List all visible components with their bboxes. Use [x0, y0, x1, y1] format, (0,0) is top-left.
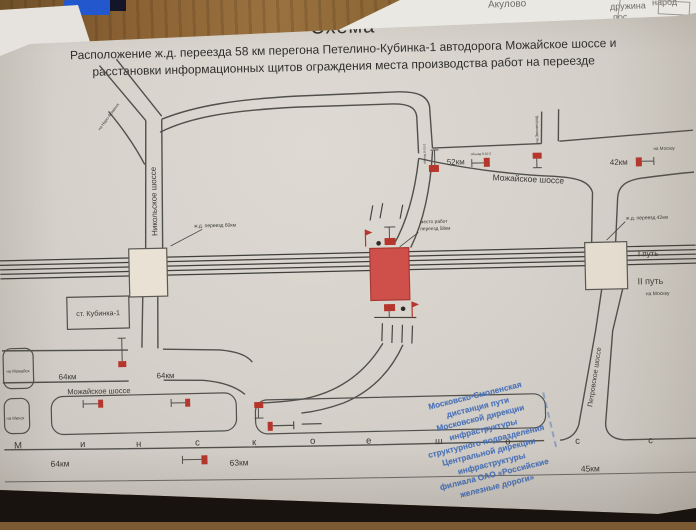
- direction-minsk: на Минск: [6, 415, 24, 420]
- work-zone-crossing-58km-box: [370, 248, 410, 301]
- info-sign-island2-arrow: [268, 421, 322, 431]
- road-label-nikolskoye: Никольское шоссе: [149, 166, 160, 236]
- road-label-petrovskoye: Петровское шоссе: [587, 347, 603, 408]
- minskoye-letter: н: [136, 439, 141, 450]
- station-kubinka1: ст. Кубинка-1: [67, 296, 131, 368]
- schema-content: Схема Расположение ж.д. переезда 58 км п…: [0, 0, 696, 530]
- km-mark-42: 42км: [610, 158, 628, 167]
- km-mark-45: 45км: [581, 463, 600, 473]
- info-sign-island1-a: [83, 400, 103, 408]
- km-mark-64a: 64км: [58, 372, 76, 381]
- direction-mozhaysk: на Можайск: [6, 368, 29, 374]
- schema-sheet: Схема Расположение ж.д. переезда 58 км п…: [0, 0, 696, 522]
- crossing-60km-box: [129, 248, 168, 297]
- work-zone-symbols-bottom: [384, 301, 419, 318]
- background-text-druzhina: дружина: [610, 0, 646, 11]
- road-label-mozhayskoye-bottom: Можайское шоссе: [67, 386, 130, 396]
- station-label: ст. Кубинка-1: [76, 308, 120, 318]
- info-sign-63km: [182, 455, 207, 465]
- km-mark-64c: 64км: [50, 458, 69, 468]
- minskoye-letter: с: [648, 435, 653, 446]
- detour-note: объезд 8-10-2: [471, 152, 492, 156]
- track-1-label: I путь: [638, 249, 659, 258]
- minskoye-letter: с: [575, 436, 580, 447]
- crossing-42km-box: [585, 242, 628, 290]
- dark-object: [110, 0, 126, 11]
- photo-scene: Акулово дружина пос народ Схема Располож…: [0, 0, 696, 522]
- info-sign-42km: [636, 157, 654, 166]
- crossing-42km-label: ж.д. переезд 42км: [626, 215, 669, 222]
- minskoye-letter: о: [310, 436, 316, 447]
- minskoye-letter: и: [80, 439, 86, 450]
- direction-moscow-road: на Москву: [653, 146, 675, 151]
- background-text-akulovo: Акулово: [488, 0, 527, 11]
- road-label-mozhayskoye-top: Можайское шоссе: [492, 172, 564, 185]
- km-mark-64b: 64км: [156, 371, 174, 380]
- km-mark-63: 63км: [229, 457, 248, 467]
- work-zone-symbols-top: [365, 227, 395, 247]
- minskoye-letter: с: [195, 437, 200, 448]
- work-zone-label-1: место работ: [420, 219, 448, 226]
- km-mark-52: 52км: [447, 157, 465, 166]
- minskoye-letter: М: [14, 440, 22, 451]
- detour-note-vertical: объезд 8-10-2: [422, 143, 426, 164]
- info-sign-island1-b: [171, 399, 190, 407]
- crossing-60km-label: ж.д. переезд 60км: [194, 223, 237, 230]
- minskoye-letter: е: [366, 436, 372, 447]
- info-sign-zvenigorod: [533, 153, 542, 168]
- work-zone-label-2: переезд 58км: [420, 226, 450, 233]
- direction-zvenigorod: на Звенигород: [534, 115, 540, 143]
- ramp-road: [109, 111, 145, 166]
- schema-drawing: ст. Кубинка-1: [0, 0, 696, 530]
- background-diagram-box: [658, 0, 691, 16]
- direction-naro-fominsk: на Наро-Фоминск: [97, 102, 121, 131]
- info-sign-52km: объезд 8-10-2: [471, 152, 492, 167]
- track-2-label: II путь: [637, 276, 663, 287]
- rail-direction-moscow: на Москву: [646, 291, 670, 298]
